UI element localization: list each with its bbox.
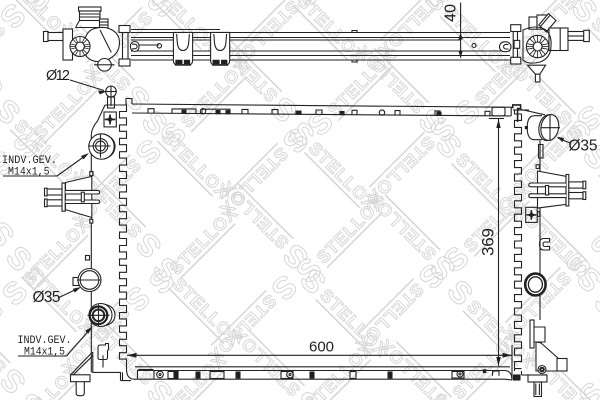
svg-text:INDV.GEV.: INDV.GEV. xyxy=(2,155,57,167)
svg-text:INDV.GEV.: INDV.GEV. xyxy=(18,335,72,347)
svg-text:40: 40 xyxy=(443,4,460,22)
svg-text:M14x1,5: M14x1,5 xyxy=(8,167,50,179)
svg-text:600: 600 xyxy=(309,339,334,356)
svg-text:369: 369 xyxy=(479,228,498,256)
svg-text:Ø35: Ø35 xyxy=(569,138,598,155)
svg-text:Ø35: Ø35 xyxy=(33,289,61,306)
svg-text:M14x1,5: M14x1,5 xyxy=(24,347,65,359)
svg-text:Ø12: Ø12 xyxy=(46,68,70,84)
